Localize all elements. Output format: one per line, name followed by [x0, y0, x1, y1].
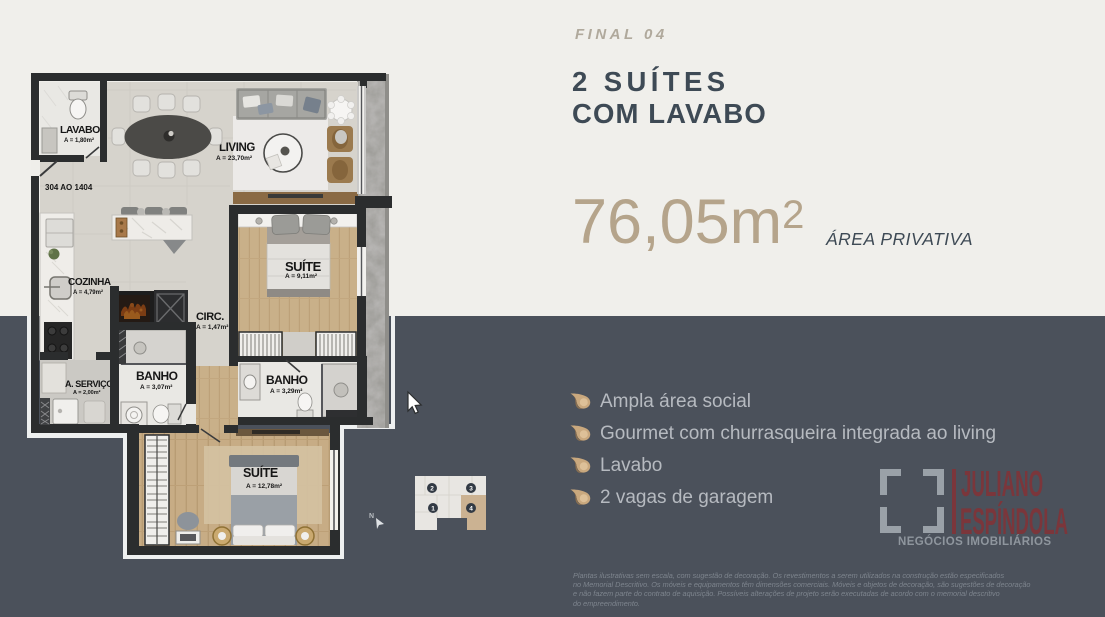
svg-text:304 AO 1404: 304 AO 1404: [45, 183, 93, 192]
svg-text:BANHO: BANHO: [136, 369, 178, 383]
svg-text:A = 3,29m²: A = 3,29m²: [270, 388, 303, 395]
svg-text:N: N: [369, 513, 374, 520]
svg-text:A = 23,70m²: A = 23,70m²: [216, 155, 253, 162]
svg-text:1: 1: [431, 506, 435, 513]
svg-text:A = 2,00m²: A = 2,00m²: [73, 389, 101, 396]
svg-text:A. SERVIÇO: A. SERVIÇO: [65, 379, 113, 389]
svg-text:A = 3,07m²: A = 3,07m²: [140, 384, 173, 391]
svg-text:A = 1,47m²: A = 1,47m²: [196, 324, 229, 331]
svg-text:A = 9,11m²: A = 9,11m²: [285, 273, 318, 280]
svg-text:A = 4,79m²: A = 4,79m²: [73, 289, 103, 296]
svg-text:2: 2: [430, 486, 434, 493]
svg-text:SUÍTE: SUÍTE: [243, 465, 278, 480]
svg-text:SUÍTE: SUÍTE: [285, 259, 322, 274]
svg-text:LIVING: LIVING: [219, 142, 255, 154]
svg-text:CIRC.: CIRC.: [196, 311, 224, 323]
svg-text:3: 3: [469, 486, 473, 493]
svg-text:4: 4: [469, 506, 473, 513]
svg-text:A = 1,80m²: A = 1,80m²: [64, 137, 94, 144]
svg-text:BANHO: BANHO: [266, 373, 308, 387]
svg-text:A = 12,78m²: A = 12,78m²: [246, 483, 283, 490]
svg-text:COZINHA: COZINHA: [68, 277, 111, 288]
svg-text:LAVABO: LAVABO: [60, 124, 100, 136]
